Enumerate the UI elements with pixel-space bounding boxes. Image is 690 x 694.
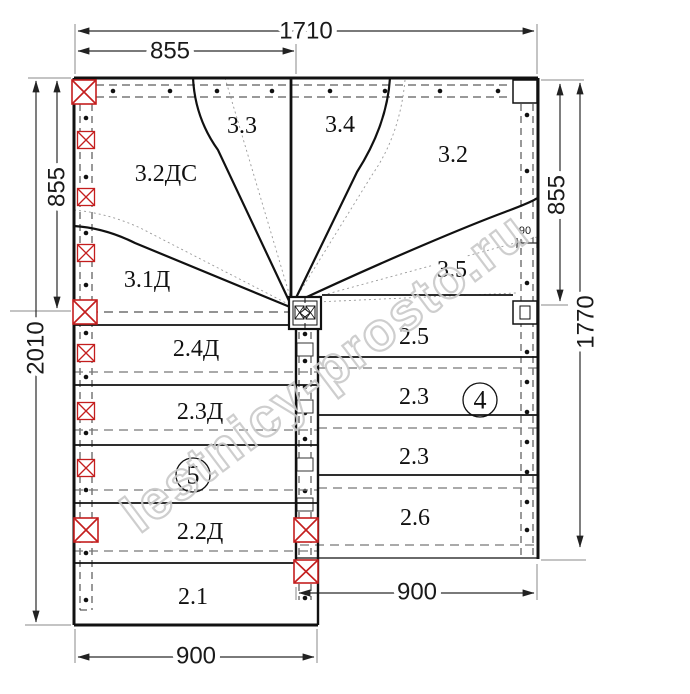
dim-top-total: 1710 [279, 18, 332, 45]
dim-right-upper: 855 [544, 175, 571, 215]
dim-left-upper: 855 [44, 167, 71, 207]
step-label-3-1d: 3.1Д [124, 267, 170, 293]
flight-number-4-label: 4 [474, 386, 487, 415]
step-label-2-3a: 2.3 [399, 384, 429, 410]
center-post [289, 297, 321, 329]
dim-bottom-right: 900 [397, 579, 437, 606]
stair-plan-drawing: 5 4 3.3 3.4 3.2ДС 3.2 3.1Д 3.5 2.4Д 2.3Д… [0, 0, 690, 694]
plan-svg: 5 4 3.3 3.4 3.2ДС 3.2 3.1Д 3.5 2.4Д 2.3Д… [0, 0, 690, 694]
post-top-right [513, 80, 537, 103]
step-label-3-2: 3.2 [438, 142, 468, 168]
railing-top [96, 85, 512, 97]
step-label-3-2ds: 3.2ДС [135, 161, 197, 187]
step-label-2-1: 2.1 [178, 584, 208, 610]
step-label-3-3: 3.3 [227, 113, 257, 139]
red-post-center-low [294, 518, 318, 542]
flight-number-5-label: 5 [187, 461, 200, 490]
flight-number-4: 4 [463, 383, 497, 417]
dim-bottom-left: 900 [176, 643, 216, 670]
step-label-3-5: 3.5 [437, 257, 467, 283]
red-post-left-low [74, 518, 98, 542]
step-label-2-5: 2.5 [399, 324, 429, 350]
dim-stringer-width: 90 [519, 225, 531, 237]
red-post-center-bottom [294, 560, 318, 583]
newel-posts-red [72, 80, 318, 583]
red-post-top-left [72, 80, 96, 104]
step-label-2-3d: 2.3Д [177, 399, 223, 425]
step-label-2-3b: 2.3 [399, 444, 429, 470]
flight-number-5: 5 [176, 458, 210, 492]
step-label-2-2d: 2.2Д [177, 519, 223, 545]
red-post-left-mid [73, 300, 97, 324]
step-label-2-6: 2.6 [400, 505, 430, 531]
dim-right-total: 1770 [573, 295, 600, 348]
dim-left-total: 2010 [23, 321, 50, 374]
step-label-3-4: 3.4 [325, 112, 355, 138]
step-label-2-4d: 2.4Д [173, 336, 219, 362]
dim-top-left-half: 855 [150, 38, 190, 65]
